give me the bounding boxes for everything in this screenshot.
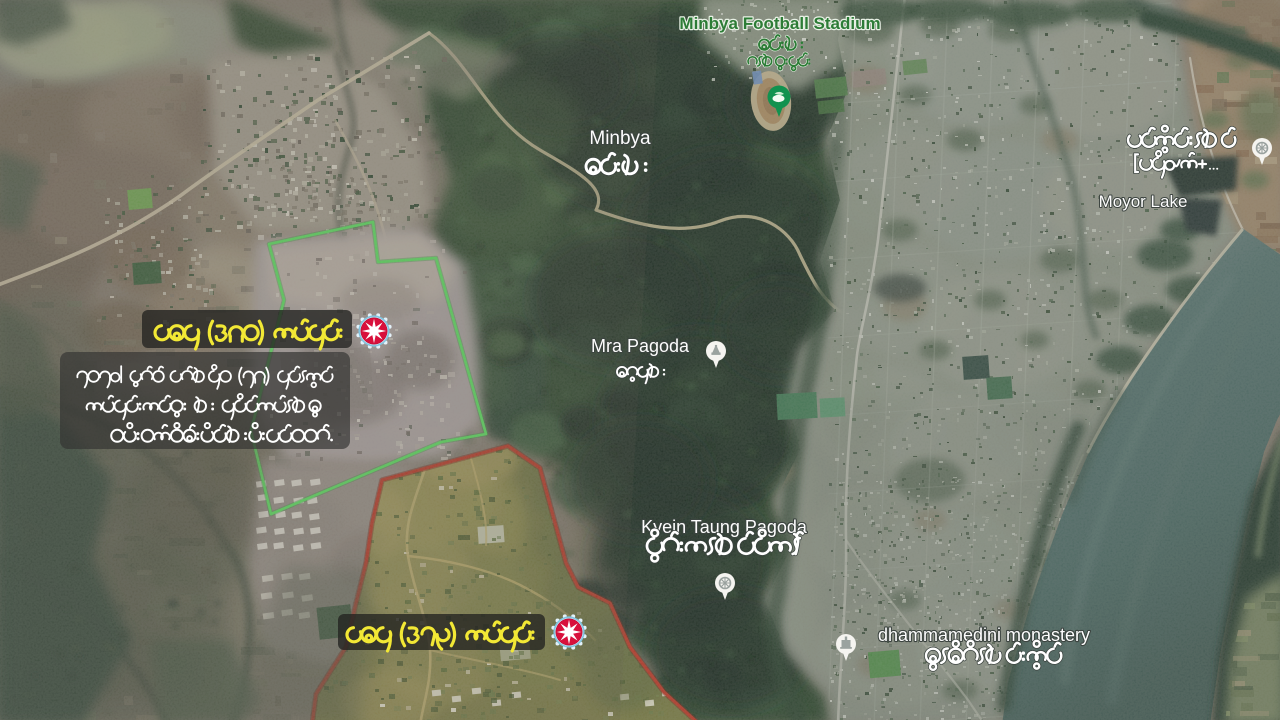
svg-text:Moyor Lake: Moyor Lake (1099, 192, 1188, 211)
svg-text:Mra Pagoda: Mra Pagoda (591, 336, 690, 356)
svg-text:Minbya Football Stadium: Minbya Football Stadium (679, 14, 880, 33)
svg-text:Kyein Taung Pagoda: Kyein Taung Pagoda (641, 517, 808, 537)
svg-text:Minbya: Minbya (589, 128, 651, 149)
